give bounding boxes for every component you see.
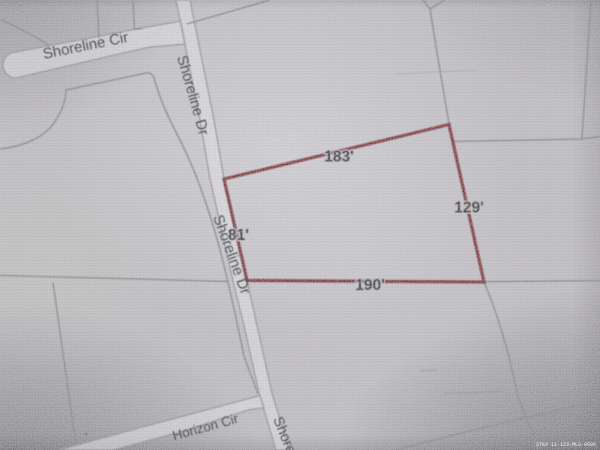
svg-text:129': 129' <box>454 200 484 217</box>
svg-text:81': 81' <box>228 227 249 244</box>
svg-text:183': 183' <box>324 149 354 166</box>
svg-text:190': 190' <box>355 277 385 294</box>
